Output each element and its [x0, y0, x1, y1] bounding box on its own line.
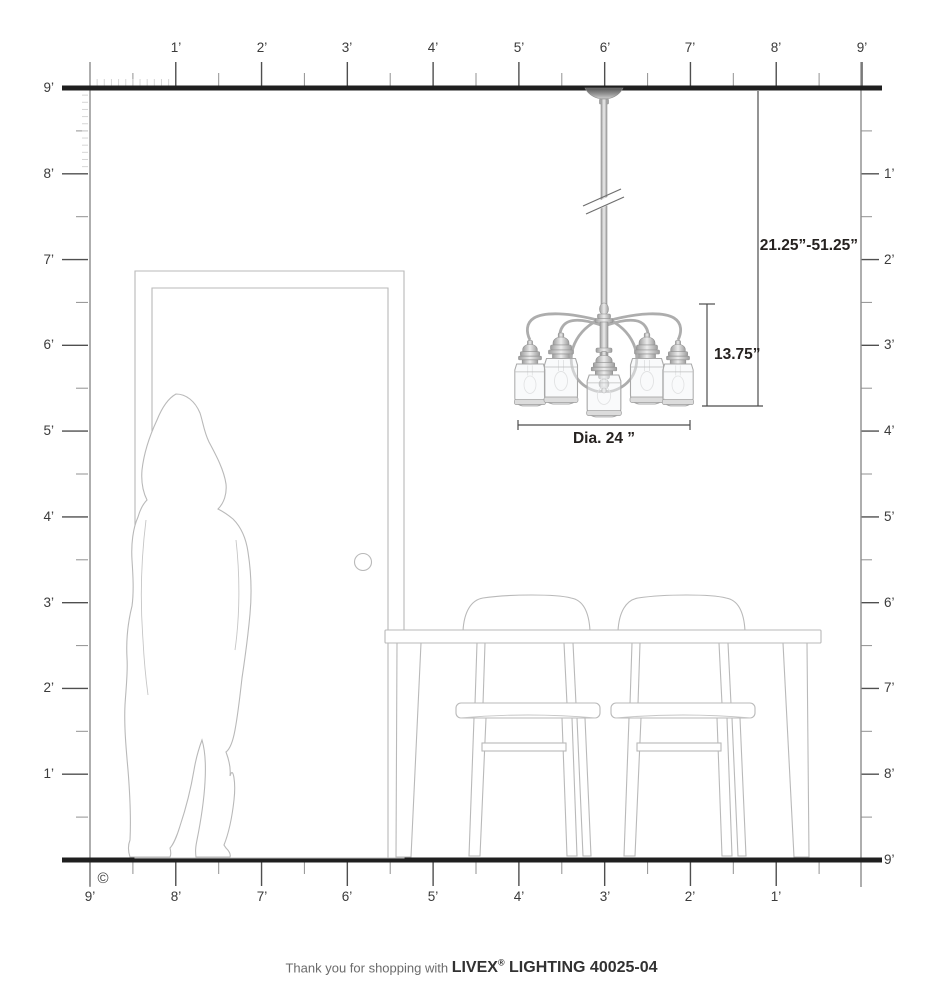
ruler-label: 9’: [857, 40, 868, 55]
registered-trademark-symbol: ®: [498, 958, 505, 968]
ruler-label: 4’: [428, 40, 439, 55]
ruler-label: 3’: [884, 337, 895, 352]
ruler-label: 8’: [43, 166, 54, 181]
chandelier-canopy: [585, 88, 623, 99]
ruler-label: 6’: [342, 889, 353, 904]
table-leg-right: [783, 643, 809, 857]
top-ruler: [97, 62, 862, 86]
glass-shade-center: [587, 352, 622, 417]
top-ruler-labels: 1’ 2’ 3’ 4’ 5’ 6’ 7’ 8’ 9’: [171, 40, 868, 55]
ruler-label: 8’: [884, 766, 895, 781]
footer-brand-model: LIVEX® LIGHTING 40025-04: [452, 959, 658, 976]
ruler-label: 4’: [884, 423, 895, 438]
bottom-ruler-labels: 9’ 8’ 7’ 6’ 5’ 4’ 3’ 2’ 1’: [85, 889, 782, 904]
diameter-label: Dia. 24 ”: [573, 430, 635, 447]
ruler-label: 3’: [342, 40, 353, 55]
fixture-height-dimension: 13.75”: [699, 304, 761, 406]
copyright-symbol: ©: [97, 870, 108, 887]
footer-thanks-text: Thank you for shopping with: [285, 960, 448, 975]
right-ruler: [861, 131, 879, 817]
table-leg-left: [396, 643, 421, 857]
glass-shade-1: [514, 341, 545, 406]
ruler-label: 8’: [171, 889, 182, 904]
ruler-label: 9’: [85, 889, 96, 904]
ruler-label: 2’: [257, 40, 268, 55]
ruler-label: 2’: [685, 889, 696, 904]
glass-shade-5: [662, 341, 693, 406]
ruler-label: 2’: [884, 252, 895, 267]
diameter-dimension: Dia. 24 ”: [518, 420, 690, 447]
ruler-label: 7’: [884, 680, 895, 695]
ruler-label: 6’: [884, 595, 895, 610]
ruler-label: 1’: [771, 889, 782, 904]
ruler-label: 7’: [257, 889, 268, 904]
bottom-ruler: [90, 862, 819, 886]
ruler-label: 3’: [600, 889, 611, 904]
ruler-label: 6’: [600, 40, 611, 55]
dimension-diagram: 21.25”-51.25” 13.75” Dia. 24 ” 1’ 2’ 3’ …: [0, 0, 943, 1000]
glass-shade-4: [630, 333, 664, 404]
hanging-range-label: 21.25”-51.25”: [760, 237, 858, 254]
diagram-canvas: 21.25”-51.25” 13.75” Dia. 24 ” 1’ 2’ 3’ …: [0, 0, 943, 1000]
brand-name: LIVEX: [452, 959, 498, 976]
ruler-label: 4’: [514, 889, 525, 904]
fixture-height-label: 13.75”: [714, 346, 761, 363]
left-ruler: [62, 95, 88, 817]
table-top: [385, 630, 821, 643]
ruler-label: 1’: [171, 40, 182, 55]
ruler-label: 5’: [884, 509, 895, 524]
dining-table: [385, 630, 821, 857]
ruler-label: 5’: [514, 40, 525, 55]
ruler-label: 3’: [43, 595, 54, 610]
ruler-label: 4’: [43, 509, 54, 524]
ruler-label: 2’: [43, 680, 54, 695]
ruler-label: 8’: [771, 40, 782, 55]
ruler-label: 1’: [43, 766, 54, 781]
left-ruler-labels: 9’ 8’ 7’ 6’ 5’ 4’ 3’ 2’ 1’: [43, 80, 54, 781]
ruler-label: 6’: [43, 337, 54, 352]
chandelier: [514, 88, 693, 417]
ruler-label: 9’: [884, 852, 895, 867]
ruler-label: 1’: [884, 166, 895, 181]
footer-model: LIGHTING 40025-04: [509, 959, 658, 976]
glass-shade-2: [544, 333, 578, 404]
ruler-label: 7’: [43, 252, 54, 267]
ruler-label: 5’: [428, 889, 439, 904]
ruler-label: 5’: [43, 423, 54, 438]
ruler-label: 9’: [43, 80, 54, 95]
footer: Thank you for shopping with LIVEX® LIGHT…: [0, 958, 943, 977]
right-ruler-labels: 1’ 2’ 3’ 4’ 5’ 6’ 7’ 8’ 9’: [884, 166, 895, 867]
ruler-label: 7’: [685, 40, 696, 55]
